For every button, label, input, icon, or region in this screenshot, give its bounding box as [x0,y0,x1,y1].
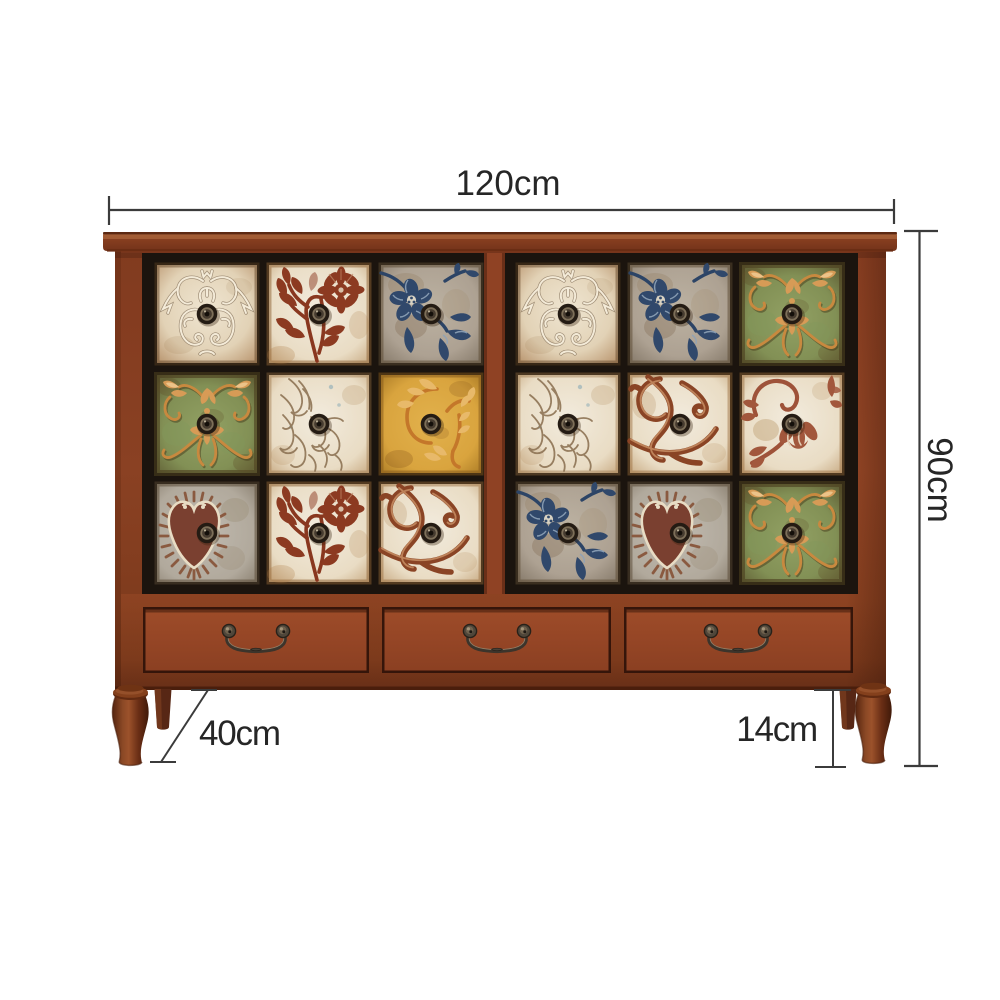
svg-text:40cm: 40cm [199,714,280,753]
svg-text:14cm: 14cm [736,710,817,749]
svg-text:120cm: 120cm [455,164,560,203]
svg-text:90cm: 90cm [920,437,959,523]
